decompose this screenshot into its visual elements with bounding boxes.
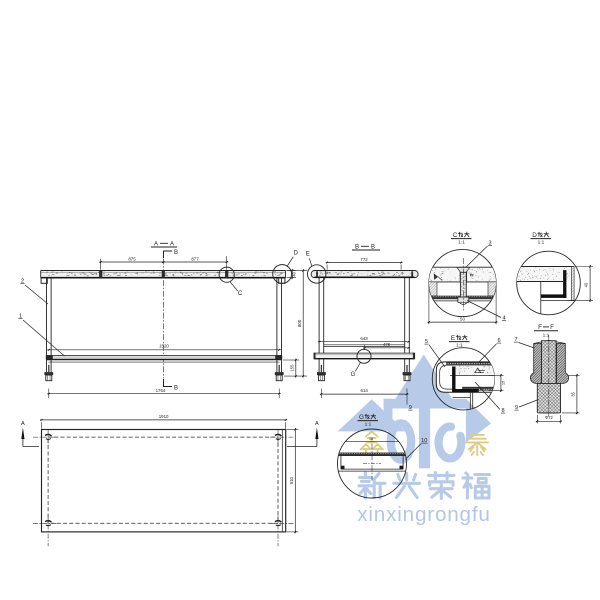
svg-text:E: E bbox=[306, 252, 310, 258]
svg-text:1910: 1910 bbox=[159, 414, 169, 419]
svg-text:15: 15 bbox=[500, 381, 505, 385]
svg-text:35: 35 bbox=[571, 392, 576, 397]
svg-text:E: E bbox=[451, 335, 455, 342]
svg-text:40: 40 bbox=[292, 271, 297, 276]
svg-text:910: 910 bbox=[289, 476, 294, 484]
svg-text:614: 614 bbox=[361, 388, 369, 393]
svg-text:50: 50 bbox=[460, 316, 465, 321]
svg-text:A: A bbox=[154, 241, 158, 247]
svg-text:40: 40 bbox=[584, 282, 589, 287]
svg-text:643: 643 bbox=[360, 336, 368, 341]
svg-text:xinxingrongfu: xinxingrongfu bbox=[357, 503, 490, 526]
svg-text:A: A bbox=[21, 421, 25, 427]
svg-text:Φ72: Φ72 bbox=[545, 415, 554, 420]
svg-text:C: C bbox=[453, 232, 458, 239]
svg-text:C: C bbox=[238, 291, 243, 297]
svg-text:1520: 1520 bbox=[159, 344, 169, 349]
svg-text:D: D bbox=[532, 232, 537, 239]
svg-text:B: B bbox=[174, 250, 178, 256]
svg-text:D: D bbox=[294, 250, 299, 256]
svg-text:A: A bbox=[170, 241, 174, 247]
svg-text:G: G bbox=[351, 372, 356, 378]
svg-text:18: 18 bbox=[369, 437, 373, 441]
svg-text:772: 772 bbox=[360, 257, 368, 262]
svg-text:1:1: 1:1 bbox=[365, 422, 372, 428]
svg-text:A: A bbox=[315, 421, 319, 427]
svg-text:B: B bbox=[371, 244, 375, 250]
svg-text:F: F bbox=[550, 324, 554, 331]
svg-text:1:1: 1:1 bbox=[458, 240, 465, 246]
svg-text:877: 877 bbox=[191, 256, 199, 261]
svg-text:875: 875 bbox=[128, 256, 136, 261]
svg-text:1:1: 1:1 bbox=[538, 240, 545, 246]
svg-text:F: F bbox=[538, 324, 542, 331]
svg-text:B: B bbox=[174, 386, 178, 392]
svg-text:478: 478 bbox=[383, 342, 391, 347]
svg-text:155: 155 bbox=[290, 364, 295, 372]
svg-text:B: B bbox=[355, 244, 359, 250]
svg-text:1764: 1764 bbox=[156, 388, 166, 393]
svg-text:800: 800 bbox=[297, 319, 302, 327]
svg-text:G: G bbox=[359, 414, 364, 421]
